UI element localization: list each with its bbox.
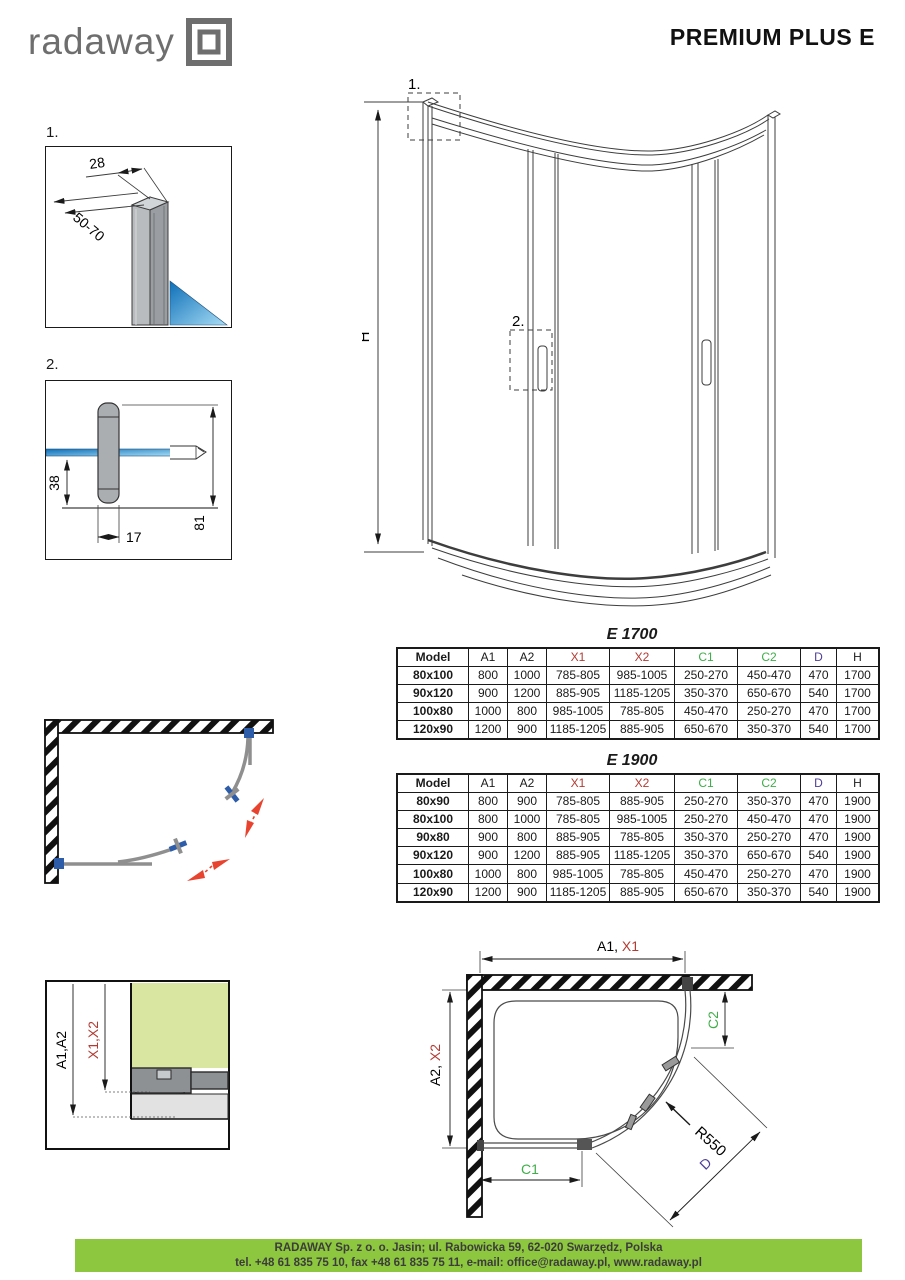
table-e1700-block: E 1700 ModelA1A2X1X2C1C2DH80x10080010007… bbox=[396, 626, 868, 740]
slide-direction-arrow-right bbox=[245, 798, 264, 838]
table-row: 100x801000800985-1005785-805450-470250-2… bbox=[397, 865, 879, 883]
col-header-C1: C1 bbox=[675, 774, 738, 793]
dim-81: 81 bbox=[191, 515, 207, 531]
dim-50-70: 50-70 bbox=[70, 209, 108, 244]
col-header-X1: X1 bbox=[547, 648, 610, 667]
door-sliding-plan-diagram bbox=[42, 712, 277, 892]
logo-text: radaway bbox=[28, 20, 175, 64]
col-header-D: D bbox=[801, 774, 837, 793]
right-door-handle bbox=[702, 340, 711, 385]
dim-A2-X2: A2, X2 bbox=[428, 1044, 443, 1086]
col-header-Model: Model bbox=[397, 648, 469, 667]
col-header-A1: A1 bbox=[469, 774, 508, 793]
dim-X1-X2: X1,X2 bbox=[85, 1021, 101, 1059]
col-header-X2: X2 bbox=[610, 648, 675, 667]
dim-38: 38 bbox=[46, 475, 62, 491]
dim-17: 17 bbox=[126, 529, 142, 545]
col-header-C2: C2 bbox=[738, 774, 801, 793]
table-row: 100x801000800985-1005785-805450-470250-2… bbox=[397, 703, 879, 721]
col-header-X1: X1 bbox=[547, 774, 610, 793]
spec-table: ModelA1A2X1X2C1C2DH80x1008001000785-8059… bbox=[396, 647, 880, 740]
wall-bracket bbox=[54, 858, 64, 869]
tray-outline bbox=[494, 1001, 678, 1139]
col-header-X2: X2 bbox=[610, 774, 675, 793]
col-header-C1: C1 bbox=[675, 648, 738, 667]
wall-bracket bbox=[244, 728, 254, 738]
detail2-figure: 38 17 81 bbox=[45, 380, 232, 560]
footer-address: RADAWAY Sp. z o. o. Jasin; ul. Rabowicka… bbox=[275, 1241, 663, 1256]
table-e1900: ModelA1A2X1X2C1C2DH80x90800900785-805885… bbox=[396, 773, 868, 903]
col-header-D: D bbox=[801, 648, 837, 667]
door-handle-bracket bbox=[220, 782, 244, 806]
top-wall bbox=[467, 975, 752, 990]
col-header-H: H bbox=[837, 774, 880, 793]
door-handle-bracket bbox=[167, 835, 190, 857]
detail1-label: 1. bbox=[46, 124, 59, 141]
door-handle bbox=[98, 403, 119, 503]
table-row: 90x1209001200885-9051185-1205350-370650-… bbox=[397, 685, 879, 703]
left-door-handle bbox=[538, 346, 547, 391]
table-e1900-title: E 1900 bbox=[396, 752, 868, 770]
door-roller bbox=[577, 1139, 592, 1150]
callout-1-label: 1. bbox=[408, 78, 421, 93]
door-roller bbox=[682, 977, 693, 990]
col-header-Model: Model bbox=[397, 774, 469, 793]
table-row: 120x9012009001185-1205885-905650-670350-… bbox=[397, 721, 879, 740]
dim-28: 28 bbox=[88, 154, 106, 172]
table-e1700-title: E 1700 bbox=[396, 626, 868, 644]
logo-square-icon bbox=[185, 18, 233, 66]
left-wall bbox=[467, 975, 482, 1217]
dim-C2: C2 bbox=[705, 1011, 721, 1029]
col-header-A1: A1 bbox=[469, 648, 508, 667]
table-row: 90x80900800885-905785-805350-370250-2704… bbox=[397, 829, 879, 847]
callout-2-box bbox=[510, 330, 552, 390]
shower-tray bbox=[131, 1094, 228, 1119]
table-row: 80x90800900785-805885-905250-270350-3704… bbox=[397, 793, 879, 811]
shower-enclosure-elevation-drawing: H 1. 2. bbox=[362, 78, 802, 608]
col-header-C2: C2 bbox=[738, 648, 801, 667]
detail1-figure: 28 50-70 bbox=[45, 146, 232, 328]
door-roller bbox=[477, 1140, 484, 1151]
plan-dimension-drawing: A1, X1 A2, X2 C2 C1 R550 bbox=[428, 933, 880, 1239]
table-e1700: ModelA1A2X1X2C1C2DH80x1008001000785-8059… bbox=[396, 647, 868, 740]
dim-A1-X1: A1, X1 bbox=[597, 938, 639, 954]
col-header-A2: A2 bbox=[508, 648, 547, 667]
installation-section-drawing: A1,A2 X1,X2 bbox=[45, 980, 230, 1150]
wall-profile-detail-drawing: 28 50-70 bbox=[46, 147, 231, 327]
top-wall bbox=[45, 720, 273, 733]
table-row: 80x1008001000785-805985-1005250-270450-4… bbox=[397, 667, 879, 685]
wall-section bbox=[131, 983, 228, 1068]
col-header-H: H bbox=[837, 648, 880, 667]
table-row: 120x9012009001185-1205885-905650-670350-… bbox=[397, 883, 879, 902]
dim-C1: C1 bbox=[521, 1161, 539, 1177]
dim-A1-A2: A1,A2 bbox=[53, 1031, 69, 1069]
footer-contact: tel. +48 61 835 75 10, fax +48 61 835 75… bbox=[235, 1256, 702, 1271]
glass-panel bbox=[170, 281, 227, 325]
table-row: 90x1209001200885-9051185-1205350-370650-… bbox=[397, 847, 879, 865]
col-header-A2: A2 bbox=[508, 774, 547, 793]
footer-bar: RADAWAY Sp. z o. o. Jasin; ul. Rabowicka… bbox=[75, 1239, 862, 1272]
callout-2-label: 2. bbox=[512, 313, 525, 330]
door-roller bbox=[640, 1094, 655, 1111]
dim-H: H bbox=[362, 332, 373, 343]
detail2-label: 2. bbox=[46, 356, 59, 373]
page-title: PREMIUM PLUS E bbox=[670, 24, 875, 51]
seal-profile bbox=[170, 446, 206, 459]
dim-R550: R550 bbox=[691, 1123, 729, 1160]
radaway-logo: radaway bbox=[28, 18, 233, 66]
datasheet-page: radaway PREMIUM PLUS E 1. 28 bbox=[0, 0, 905, 1280]
table-row: 80x1008001000785-805985-1005250-270450-4… bbox=[397, 811, 879, 829]
spec-table: ModelA1A2X1X2C1C2DH80x90800900785-805885… bbox=[396, 773, 880, 903]
dim-D: D bbox=[696, 1154, 714, 1172]
handle-section-detail-drawing: 38 17 81 bbox=[46, 381, 231, 559]
slide-direction-arrow-left bbox=[187, 859, 230, 881]
table-e1900-block: E 1900 ModelA1A2X1X2C1C2DH80x90800900785… bbox=[396, 752, 868, 903]
